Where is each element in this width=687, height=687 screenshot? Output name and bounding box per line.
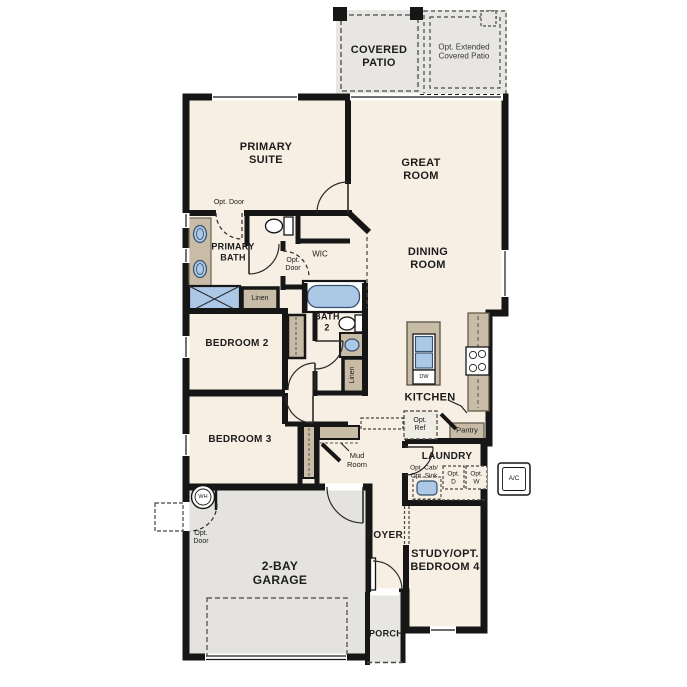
bedroom2-closet [288,315,305,358]
garage-label: 2-BAYGARAGE [253,559,307,587]
kitchen-sink-icon [416,337,433,352]
sink-icon [194,226,207,243]
bedroom3-label: BEDROOM 3 [208,434,271,446]
sink-icon [345,339,359,351]
study-label: STUDY/OPT.BEDROOM 4 [410,548,479,574]
kitchen-label: KITCHEN [405,392,456,405]
patio-post [410,7,423,20]
covered-patio-label: COVEREDPATIO [351,44,408,70]
pantry-label: Pantry [456,427,478,436]
sink-icon [194,261,207,278]
dining-room-label: DININGROOM [408,246,448,272]
opt-door-label-3: Opt.Door [193,530,208,547]
mud-room-label: MudRoom [347,452,367,470]
wic-label: WIC [312,249,328,258]
porch-label: PORCH [369,629,403,640]
foyer-label: FOYER [367,530,403,542]
primary-bath-label: PRIMARYBATH [211,241,254,262]
patio-post [333,7,347,21]
dw-label: DW [419,374,428,380]
linen-label-2: Linen [349,366,357,383]
floor-plan: COVEREDPATIO Opt. ExtendedCovered Patio … [0,0,687,687]
wh-label: WH [198,494,207,500]
ac-label: A/C [509,475,520,483]
great-room-label: GREATROOM [401,157,440,183]
toilet-icon [339,315,363,332]
primary-suite-label: PRIMARYSUITE [240,141,292,167]
opt-washer-label: Opt.W [470,470,482,485]
opt-extended-patio-label: Opt. ExtendedCovered Patio [438,43,489,62]
linen-label-1: Linen [251,295,268,303]
bath2-label: BATH2 [314,311,340,332]
opt-door-label-2: Opt.Door [285,257,300,274]
kitchen-sink-icon [416,353,433,368]
cooktop-icon [466,347,489,375]
opt-cab-sink-label: Opt. Cab/Opt. Sink [410,464,438,479]
mudroom-bench [319,426,359,439]
opt-ref-label: Opt.Ref [413,417,426,434]
floor-plan-canvas [0,0,687,687]
laundry-label: LAUNDRY [422,451,473,463]
opt-door-label-1: Opt. Door [214,199,244,207]
tub-icon [303,281,365,312]
bedroom2-label: BEDROOM 2 [205,338,268,350]
opt-dryer-label: Opt.D [447,470,459,485]
